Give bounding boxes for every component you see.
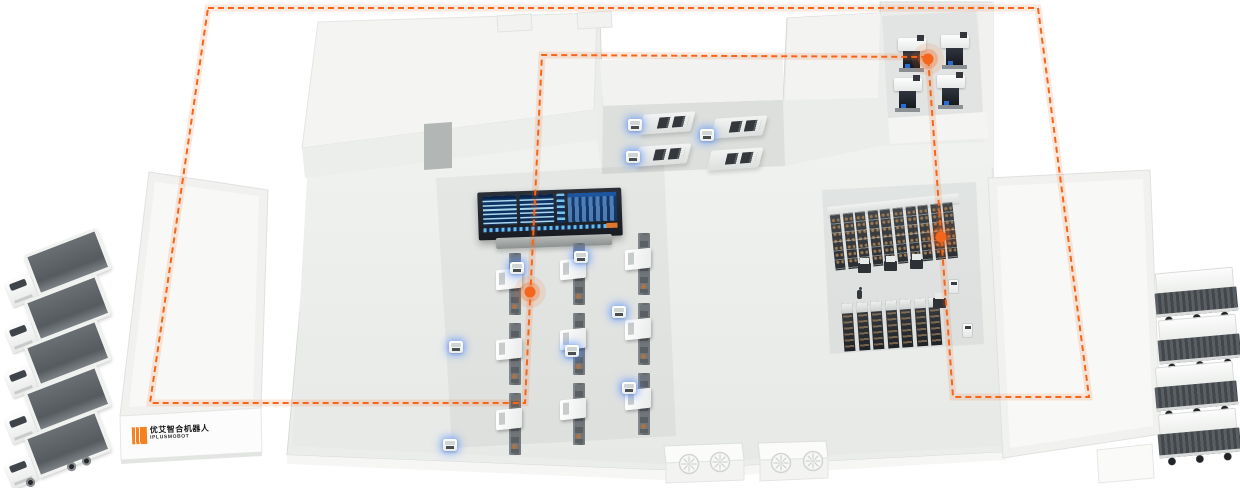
smart-factory-scene: 优艾智合机器人 IPLUSMOBOT [0,0,1240,488]
agv-route-overlay [0,0,1240,488]
dot-core [936,232,947,243]
route-waypoint-dot [925,221,957,253]
route-waypoint-dot [514,276,546,308]
route-dashed-path [150,8,1089,403]
route-waypoint-dot [912,43,944,75]
dot-core [923,54,934,65]
dot-core [525,287,536,298]
